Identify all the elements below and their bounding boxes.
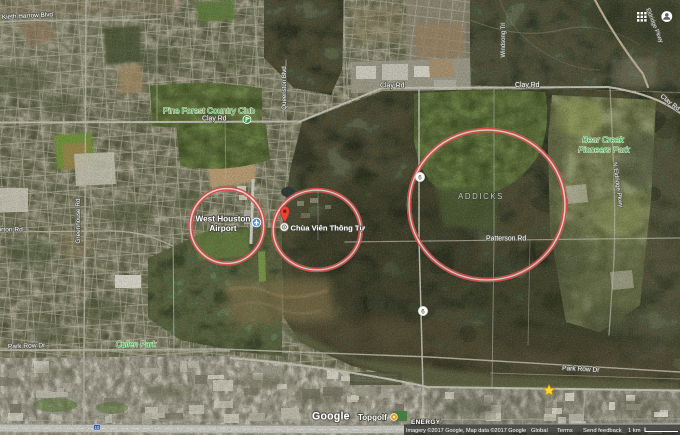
- svg-text:ADDICKS: ADDICKS: [458, 192, 504, 201]
- svg-text:Pine Forest Country Club: Pine Forest Country Club: [163, 107, 255, 116]
- svg-text:Windsong Trl: Windsong Trl: [501, 22, 507, 57]
- svg-text:Imagery ©2017 Google, Map data: Imagery ©2017 Google, Map data ©2017 Goo…: [406, 427, 526, 434]
- svg-text:Clay Rd: Clay Rd: [515, 82, 540, 89]
- svg-text:Google: Google: [312, 411, 350, 423]
- svg-text:Queenston Blvd: Queenston Blvd: [281, 66, 288, 109]
- svg-text:Send feedback: Send feedback: [583, 428, 622, 434]
- svg-text:6: 6: [418, 174, 422, 181]
- svg-text:Pioneers Park: Pioneers Park: [578, 146, 630, 155]
- svg-text:Patterson Rd: Patterson Rd: [486, 236, 526, 243]
- svg-text:Global: Global: [531, 428, 548, 434]
- svg-text:Airport: Airport: [209, 224, 237, 233]
- svg-text:6: 6: [421, 308, 425, 315]
- svg-text:Clay Rd: Clay Rd: [202, 116, 227, 123]
- svg-text:Bear Creek: Bear Creek: [582, 136, 624, 145]
- svg-text:Morton Rd: Morton Rd: [0, 227, 23, 234]
- svg-text:West Houston: West Houston: [196, 215, 251, 224]
- svg-text:Cullen Park: Cullen Park: [116, 340, 157, 349]
- svg-text:Terms: Terms: [557, 428, 573, 434]
- svg-text:Chùa Viên Thông Tự: Chùa Viên Thông Tự: [291, 223, 366, 232]
- svg-text:Topgolf: Topgolf: [358, 413, 387, 422]
- svg-text:Clay Rd: Clay Rd: [380, 83, 405, 90]
- svg-text:Greenhouse Rd: Greenhouse Rd: [75, 198, 82, 244]
- svg-text:Park Row Dr: Park Row Dr: [8, 342, 46, 350]
- svg-text:1 km: 1 km: [628, 428, 641, 434]
